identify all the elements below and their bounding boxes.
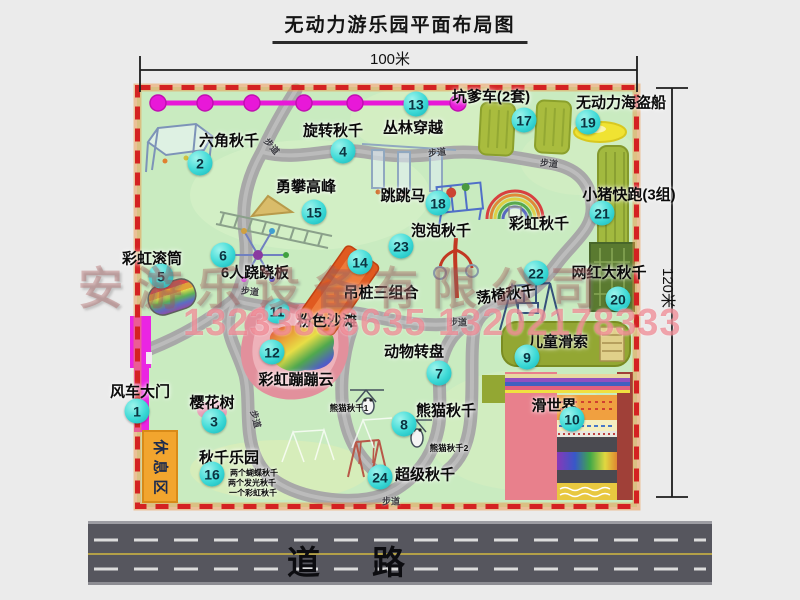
dimension-label-height: 120米 [658, 268, 679, 308]
map-marker-3[interactable]: 3 [202, 409, 227, 434]
rest-area-char: 息 [150, 459, 170, 474]
attraction-label-17: 坑爹车(2套) [452, 86, 530, 107]
map-marker-7[interactable]: 7 [427, 361, 452, 386]
attraction-label-11: 粉色沙滩 [297, 310, 357, 331]
map-marker-8[interactable]: 8 [392, 412, 417, 437]
map-marker-10[interactable]: 10 [560, 407, 585, 432]
map-marker-5[interactable]: 5 [149, 264, 174, 289]
map-marker-22[interactable]: 22 [524, 261, 549, 286]
map-marker-16[interactable]: 16 [200, 462, 225, 487]
map-marker-4[interactable]: 4 [331, 139, 356, 164]
map-marker-15[interactable]: 15 [302, 200, 327, 225]
attraction-label-8: 熊猫秋千 [416, 400, 476, 421]
dimension-label-width: 100米 [370, 48, 410, 69]
trail-label: 步道 [539, 156, 558, 171]
map-marker-9[interactable]: 9 [515, 345, 540, 370]
sub-label: 熊猫秋千2 [430, 442, 469, 454]
slide-lanes-stripes [505, 374, 630, 393]
trail-label: 步道 [427, 145, 446, 160]
attraction-label-24: 超级秋千 [395, 464, 455, 485]
sub-label: 一个彩虹秋千 [229, 488, 277, 499]
map-marker-1[interactable]: 1 [125, 399, 150, 424]
attraction-label-4: 旋转秋千 [303, 120, 363, 141]
map-marker-12[interactable]: 12 [260, 340, 285, 365]
rest-area-box: 休息区 [142, 430, 178, 503]
sub-label: 彩虹秋千 [509, 213, 569, 234]
attraction-label-15: 勇攀高峰 [276, 176, 336, 197]
map-marker-2[interactable]: 2 [188, 151, 213, 176]
attraction-label-9: 儿童滑索 [528, 331, 588, 352]
attraction-label-13: 丛林穿越 [383, 117, 443, 138]
attraction-label-7: 动物转盘 [384, 341, 444, 362]
trail-label: 步道 [240, 284, 259, 299]
map-marker-11[interactable]: 11 [265, 299, 290, 324]
attraction-label-6: 6人跷跷板 [221, 262, 289, 283]
trail-label: 步道 [449, 316, 467, 329]
map-marker-14[interactable]: 14 [348, 250, 373, 275]
attraction-label-12: 彩虹蹦蹦云 [258, 369, 333, 390]
attraction-label-14: 吊桩三组合 [343, 282, 418, 303]
map-marker-19[interactable]: 19 [576, 110, 601, 135]
road-label: 道路 [287, 536, 457, 584]
map-marker-13[interactable]: 13 [404, 92, 429, 117]
trail-label: 步道 [382, 495, 400, 508]
attraction-label-20: 网红大秋千 [571, 262, 646, 283]
sub-label: 熊猫秋千1 [330, 402, 369, 414]
map-marker-20[interactable]: 20 [606, 287, 631, 312]
page-title: 无动力游乐园平面布局图 [272, 10, 527, 44]
map-marker-17[interactable]: 17 [512, 108, 537, 133]
map-marker-6[interactable]: 6 [211, 243, 236, 268]
attraction-label-18: 跳跳马 [380, 185, 425, 206]
attraction-label-2: 六角秋千 [199, 130, 259, 151]
rest-area-char: 休 [150, 439, 170, 454]
rest-area-char: 区 [150, 479, 170, 494]
map-marker-24[interactable]: 24 [368, 465, 393, 490]
map-marker-18[interactable]: 18 [426, 191, 451, 216]
attraction-label-5: 彩虹滚筒 [122, 248, 182, 269]
map-marker-21[interactable]: 21 [590, 201, 615, 226]
plan-sheet: 无动力游乐园平面布局图 100米 120米 安游乐设备有限公司 13233836… [0, 0, 800, 600]
attraction-label-23: 泡泡秋千 [411, 220, 471, 241]
map-marker-23[interactable]: 23 [389, 234, 414, 259]
